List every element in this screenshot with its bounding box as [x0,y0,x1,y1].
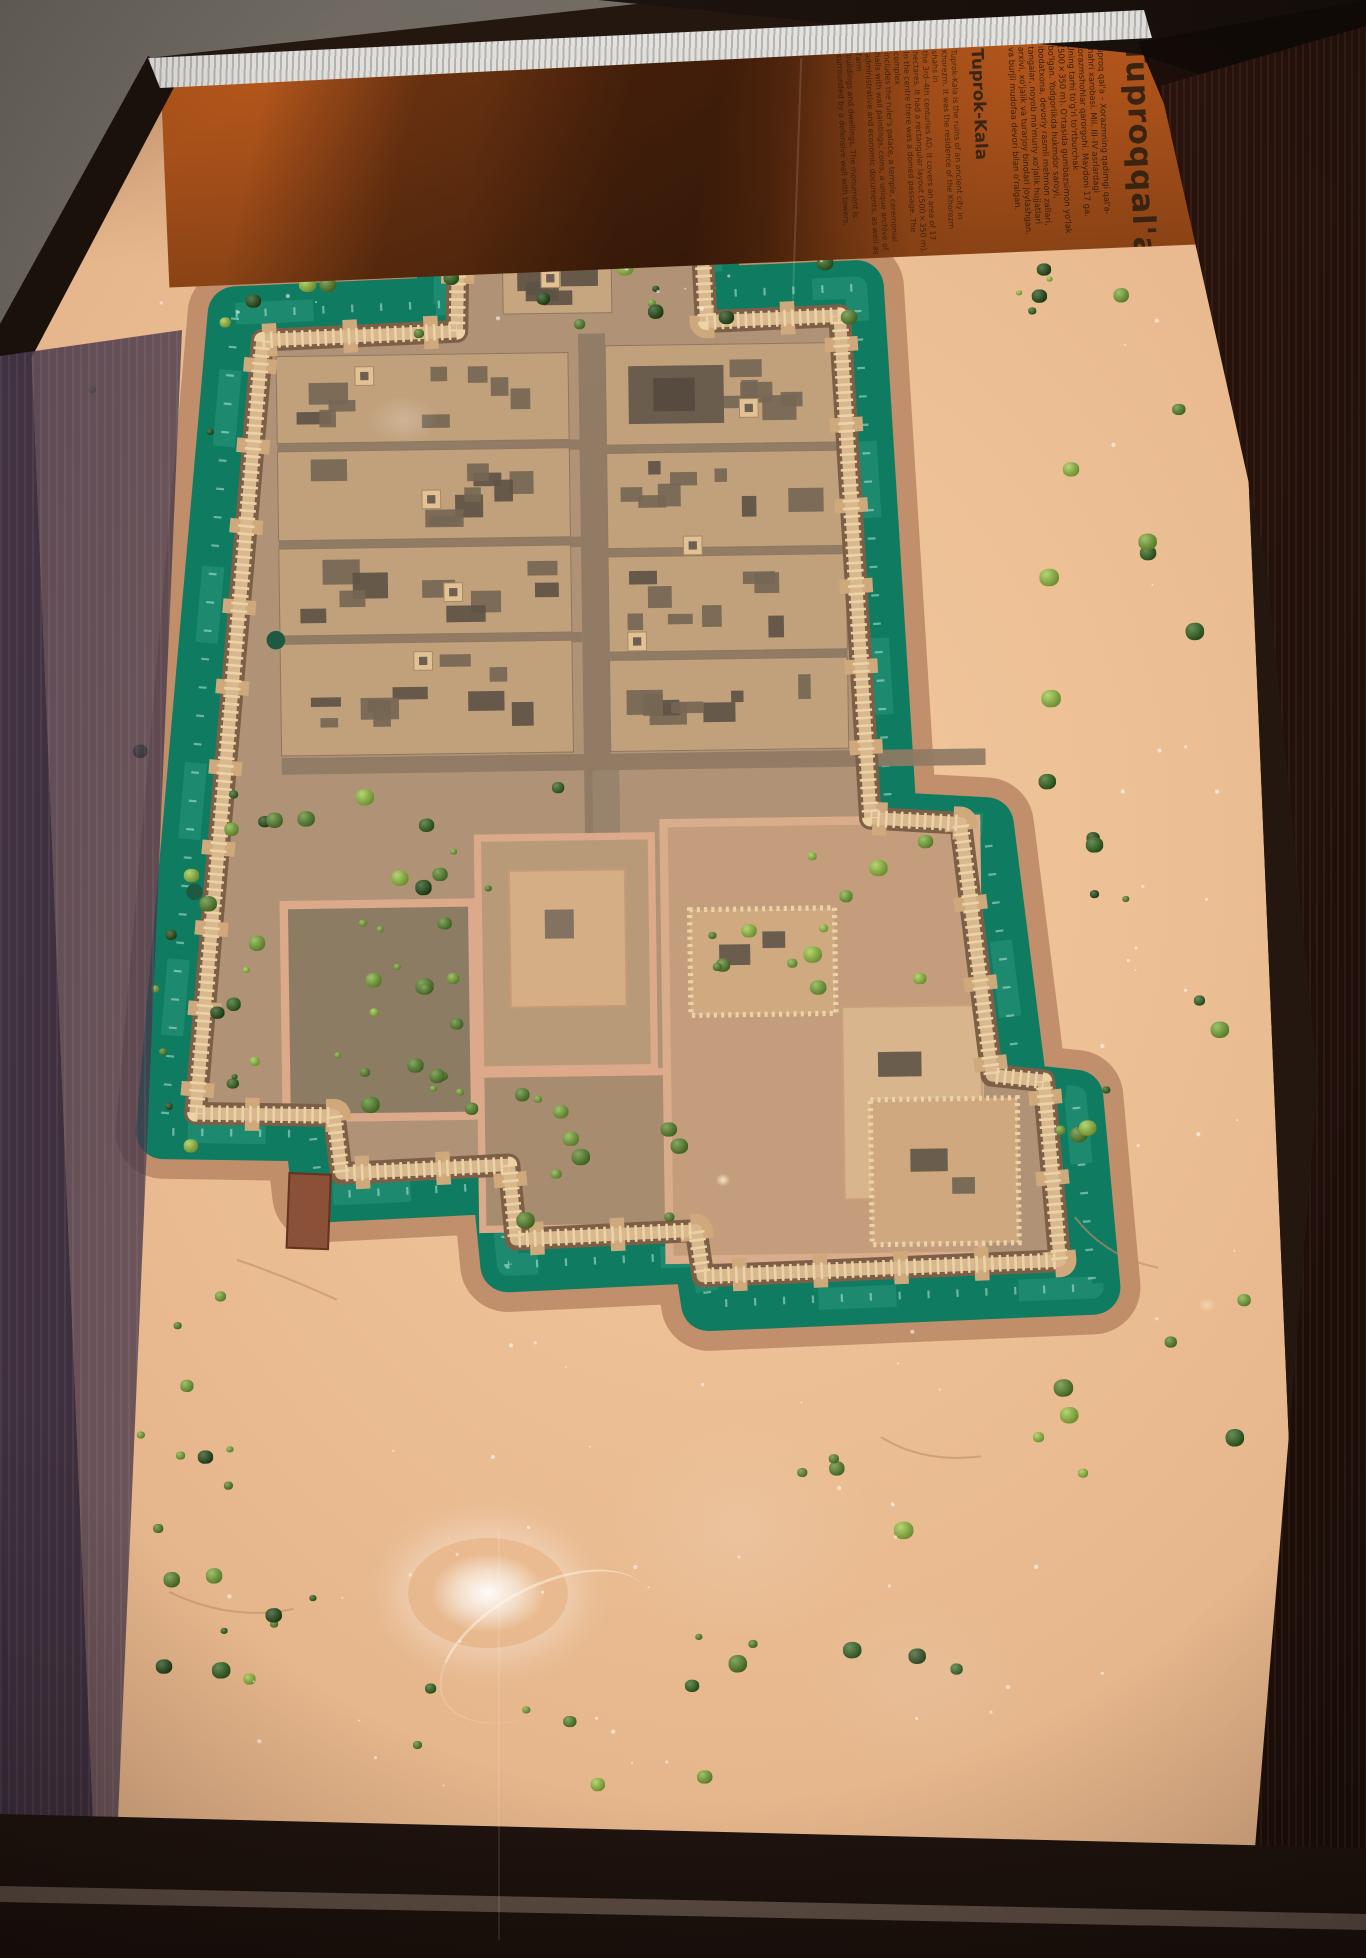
panel-body-en: Tuprok-Kala is the ruins of an ancient c… [834,49,966,257]
light-glint [1196,1296,1218,1314]
panel-body-uz: Tuproq qal'a – Xorazmning qadimgi qal'a-… [1006,43,1114,250]
panel-text-block: Tuproqqal'a Tuproq qal'a – Xorazmning qa… [761,41,1162,260]
moat-bridge [287,1173,331,1249]
info-panel: Tuproqqal'a Tuproq qal'a – Xorazmning qa… [160,22,1214,287]
panel-title-en: Tuprok-Kala [967,48,995,252]
large-courtyards [628,365,724,424]
glass-haze [360,390,446,450]
panel-title-uz: Tuproqqal'a [1117,41,1162,245]
light-glint [714,1172,732,1188]
glass-haze [760,1560,1080,1810]
exhibit-photo: Tuproqqal'a Tuproq qal'a – Xorazmning qa… [0,0,1366,1958]
